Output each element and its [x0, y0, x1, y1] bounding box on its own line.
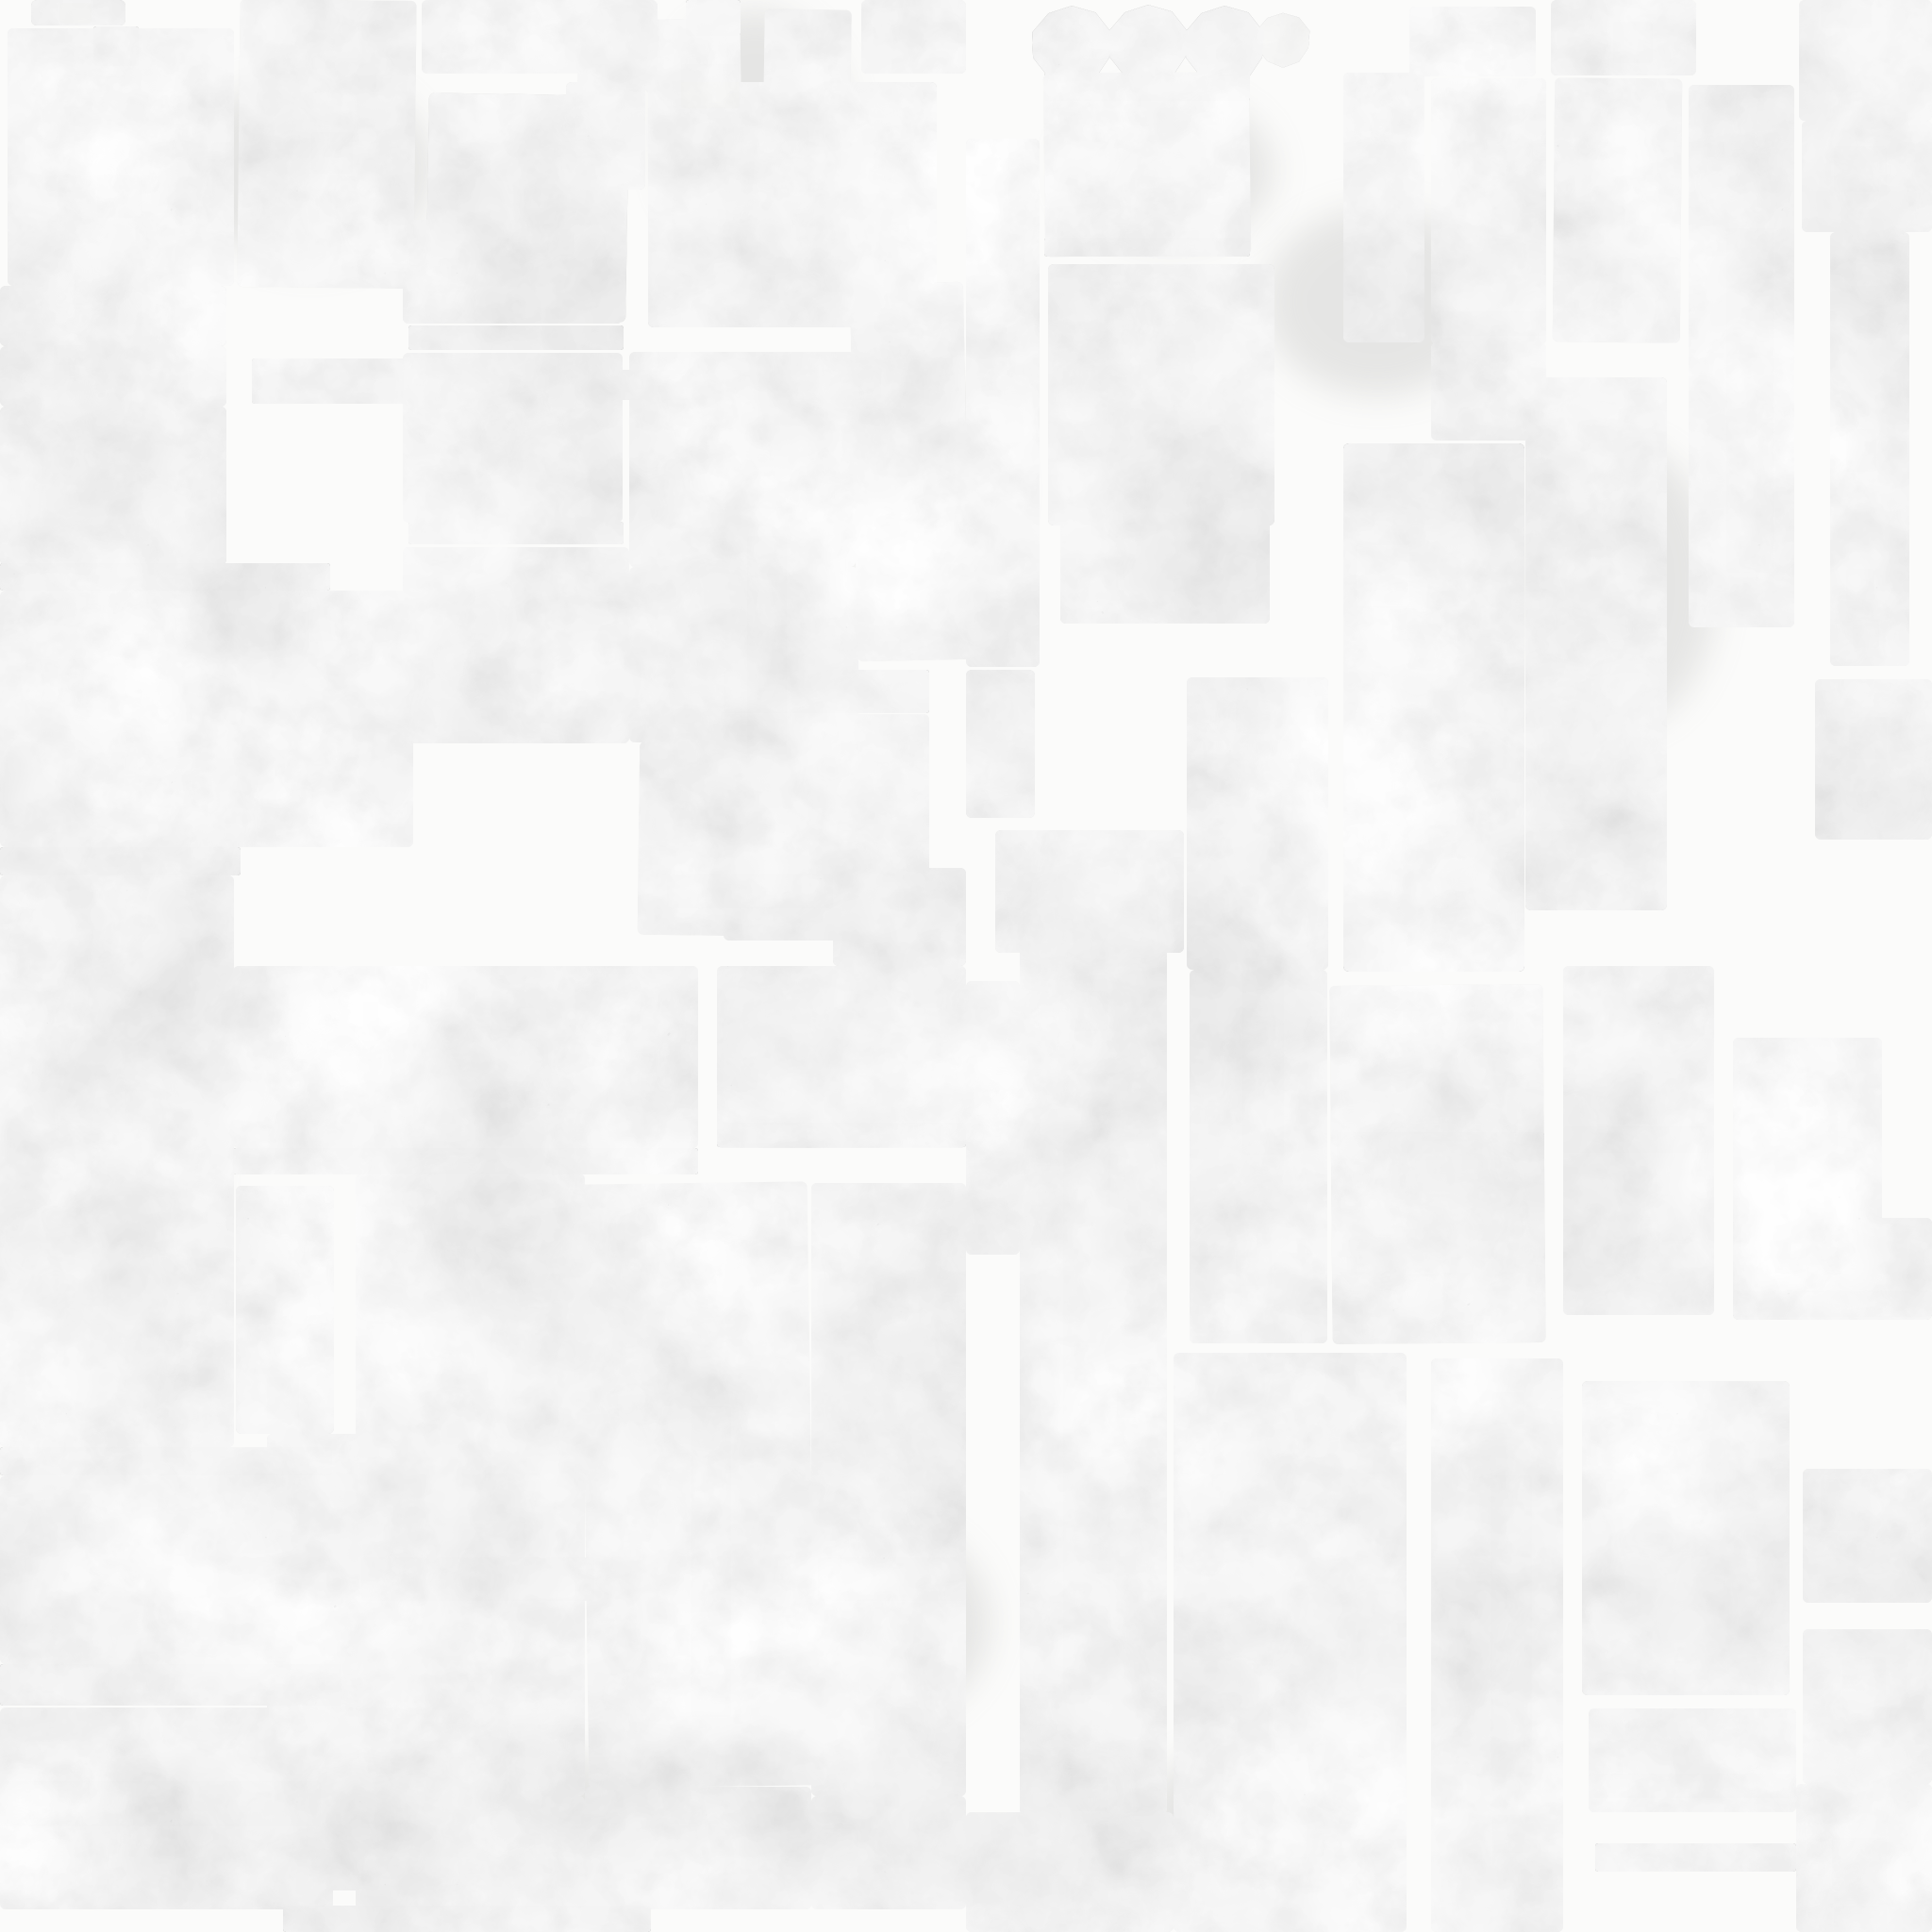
texture-atlas-canvas: [0, 0, 1932, 1932]
texture-atlas: [0, 0, 1932, 1932]
